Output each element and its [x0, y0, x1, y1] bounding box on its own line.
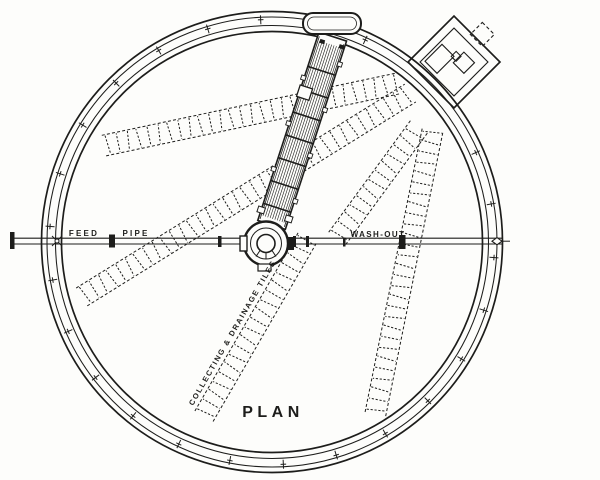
distributor-arm	[254, 31, 349, 230]
pump-house	[408, 5, 511, 108]
arm-top-handle	[303, 13, 361, 34]
washout-label: WASH-OUT	[351, 230, 406, 239]
hub-flange-right	[287, 237, 294, 250]
feed-label: FEED	[69, 229, 99, 238]
dashed-annex	[470, 22, 494, 46]
machinery-block	[425, 44, 454, 73]
pipe-label: PIPE	[122, 229, 149, 238]
pipe-coupling	[218, 236, 222, 247]
drainage-tiles-label: COLLECTING & DRAINAGE TILES	[187, 258, 278, 407]
pipe-end-flange	[10, 232, 15, 249]
labels: FEED PIPE WASH-OUT COLLECTING & DRAINAGE…	[69, 229, 405, 421]
machinery-block	[453, 52, 474, 73]
plan-title: PLAN	[242, 404, 304, 421]
hub-flange-left	[240, 236, 247, 251]
plan-drawing: FEED PIPE WASH-OUT COLLECTING & DRAINAGE…	[0, 0, 600, 480]
pipe-bolt	[343, 238, 346, 247]
engraving-page: FEED PIPE WASH-OUT COLLECTING & DRAINAGE…	[0, 0, 600, 480]
pipe-coupling	[109, 235, 115, 248]
pipe-bolt	[306, 236, 309, 247]
